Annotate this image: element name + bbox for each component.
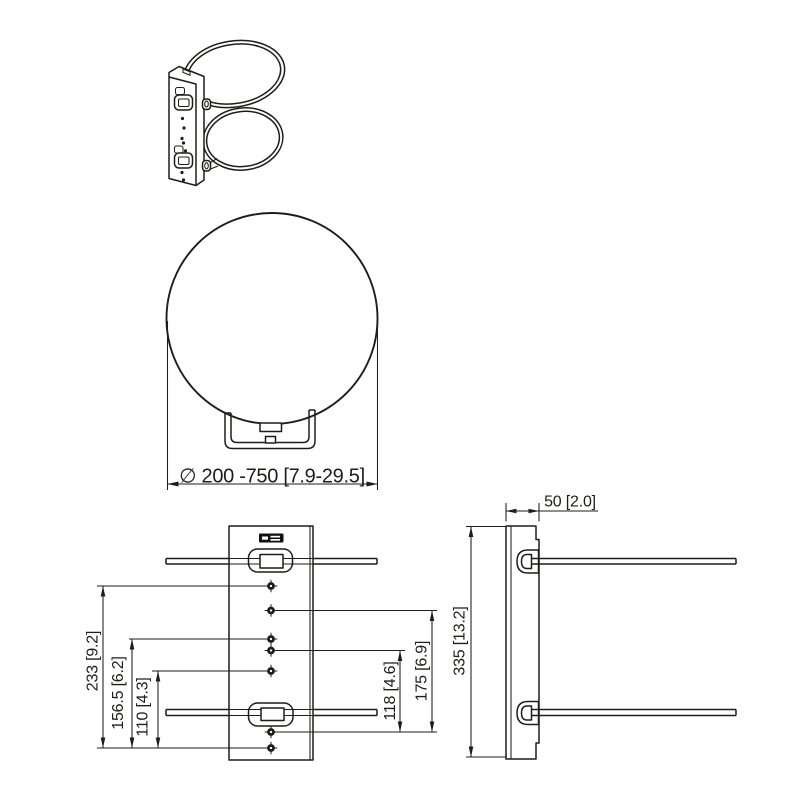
iso-lower-strap [200,103,287,174]
isometric-view [169,33,290,185]
dim-front-175: 175 [6.9] [414,611,435,733]
side-top-strap [517,550,736,573]
pole-diameter-label: ∅ 200 -750 [7.9-29.5] [179,466,365,488]
dim-front-233: 233 [9.2] [85,586,106,748]
dim-label-50: 50 [2.0] [544,494,596,511]
dim-front-110: 110 [4.3] [135,671,161,748]
brand-logo [259,534,284,543]
technical-drawing: ∅ 200 -750 [7.9-29.5] [0,0,800,800]
iso-bracket-plate [169,67,218,186]
dim-label-110: 110 [4.3] [135,677,152,736]
dim-pole-diameter: ∅ 200 -750 [7.9-29.5] [168,321,378,490]
drawing-sheet: ∅ 200 -750 [7.9-29.5] [0,0,800,800]
pole-circle [167,213,378,424]
dim-label-233: 233 [9.2] [85,631,102,691]
iso-strap-lugs [203,99,219,171]
bracket-bottom-notch [266,437,276,444]
bracket-center-tab [260,423,282,432]
pole-diameter-view: ∅ 200 -750 [7.9-29.5] [167,213,378,490]
front-top-strap [166,549,377,572]
front-view: 233 [9.2] 156.5 [6.2] 110 [4.3] 118 [4.6… [85,526,438,760]
dim-front-118: 118 [4.6] [382,651,402,733]
dim-label-335: 335 [13.2] [452,606,469,675]
dim-side-depth: 50 [2.0] [506,494,598,522]
front-bottom-buckle [261,708,284,721]
side-view: 50 [2.0] 335 [13.2] [452,494,737,760]
clamp-bracket [225,410,315,449]
dim-label-156: 156.5 [6.2] [110,656,127,729]
front-top-buckle [260,555,283,569]
dim-front-156: 156.5 [6.2] [110,639,134,748]
side-bottom-strap [517,702,736,725]
dim-side-height: 335 [13.2] [452,527,507,758]
dim-label-175: 175 [6.9] [414,641,431,701]
front-bottom-strap [166,703,377,726]
dim-label-118: 118 [4.6] [382,661,399,720]
